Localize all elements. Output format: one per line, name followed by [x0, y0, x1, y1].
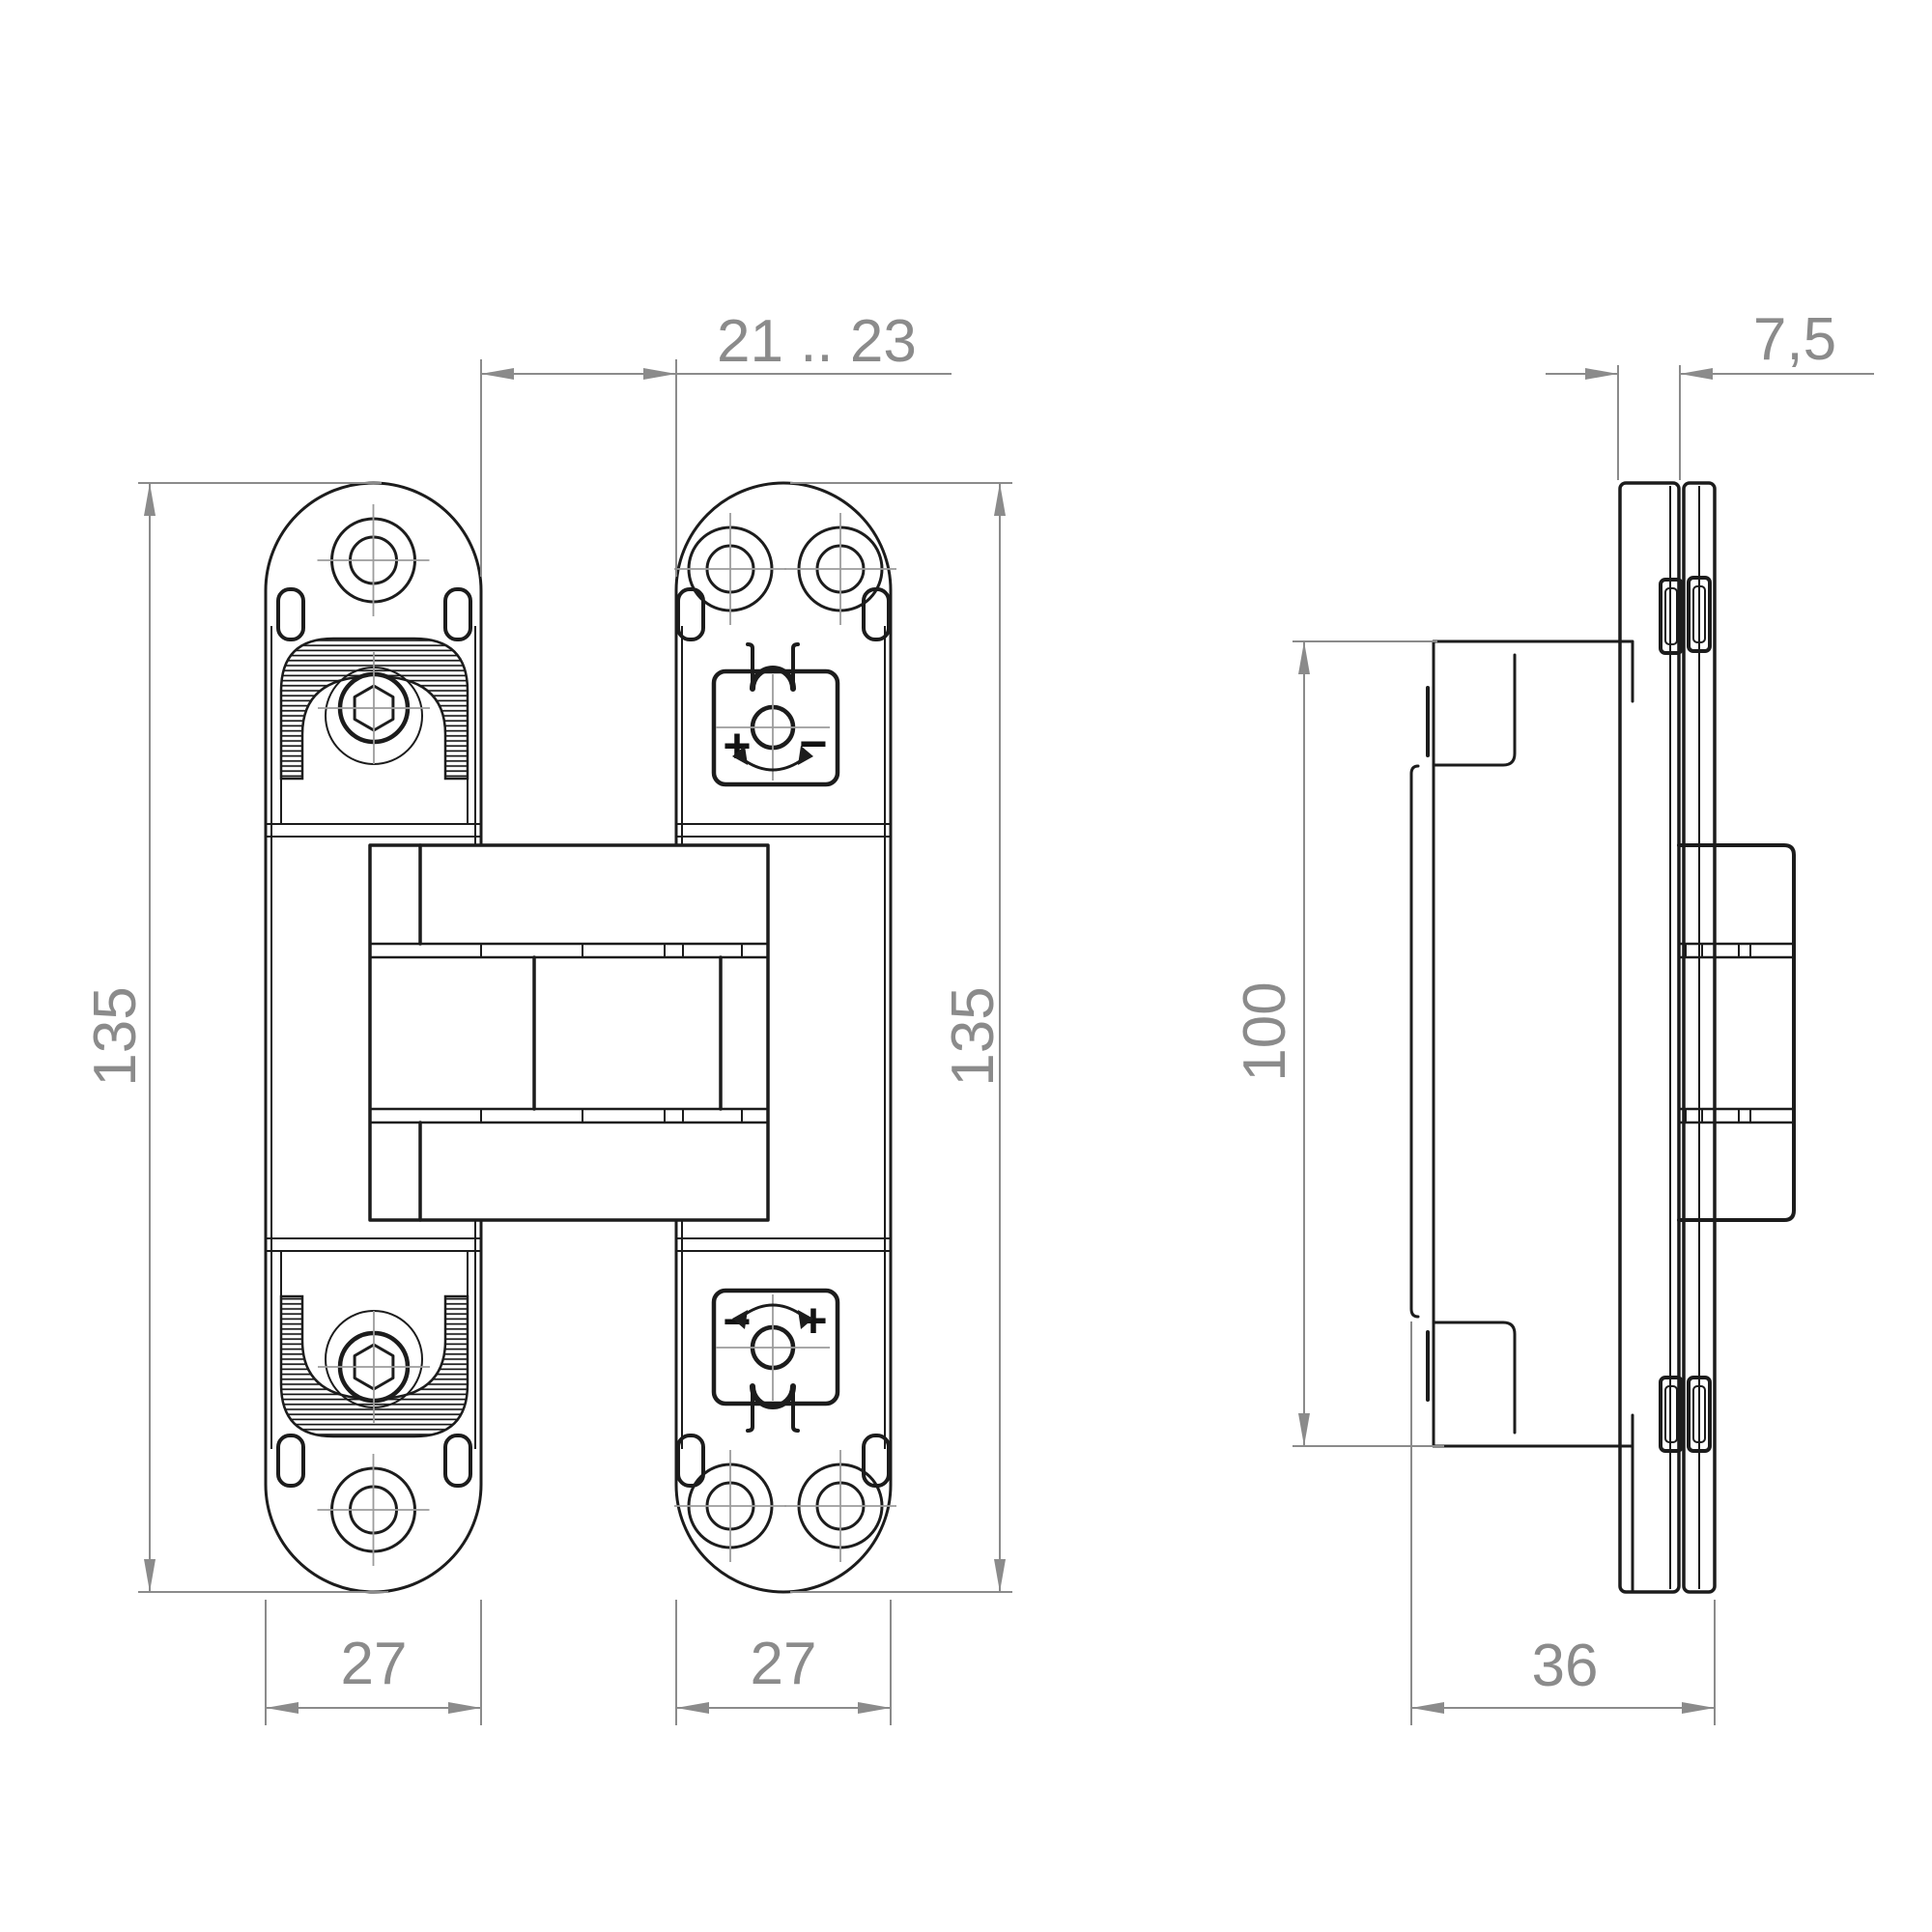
dim-text-height-left: 135: [82, 986, 149, 1086]
dim-text-door-height: 100: [1232, 981, 1298, 1081]
frame-mounting-plate: [1620, 483, 1679, 1592]
dim-text-thickness: 7,5: [1753, 306, 1836, 373]
dimension-thickness: 7,5: [1546, 306, 1874, 480]
hinge-drawing: + − − +: [0, 0, 1932, 1932]
side-view: [1411, 483, 1794, 1592]
dim-text-height-right: 135: [940, 986, 1007, 1086]
hinge-body: [370, 845, 768, 1220]
dim-text-width-left: 27: [341, 1631, 408, 1697]
dim-text-gap: 21 .. 23: [717, 308, 917, 375]
door-bracket: [1411, 641, 1633, 1592]
plus-symbol: +: [723, 719, 751, 773]
dimension-width-left: 27: [266, 1600, 481, 1725]
dim-text-depth: 36: [1532, 1633, 1599, 1699]
drawing-canvas: + − − +: [0, 0, 1932, 1932]
dim-text-width-right: 27: [751, 1631, 817, 1697]
front-view: + − − +: [266, 483, 896, 1592]
minus-symbol: −: [799, 717, 827, 771]
dimension-width-right: 27: [676, 1600, 891, 1725]
